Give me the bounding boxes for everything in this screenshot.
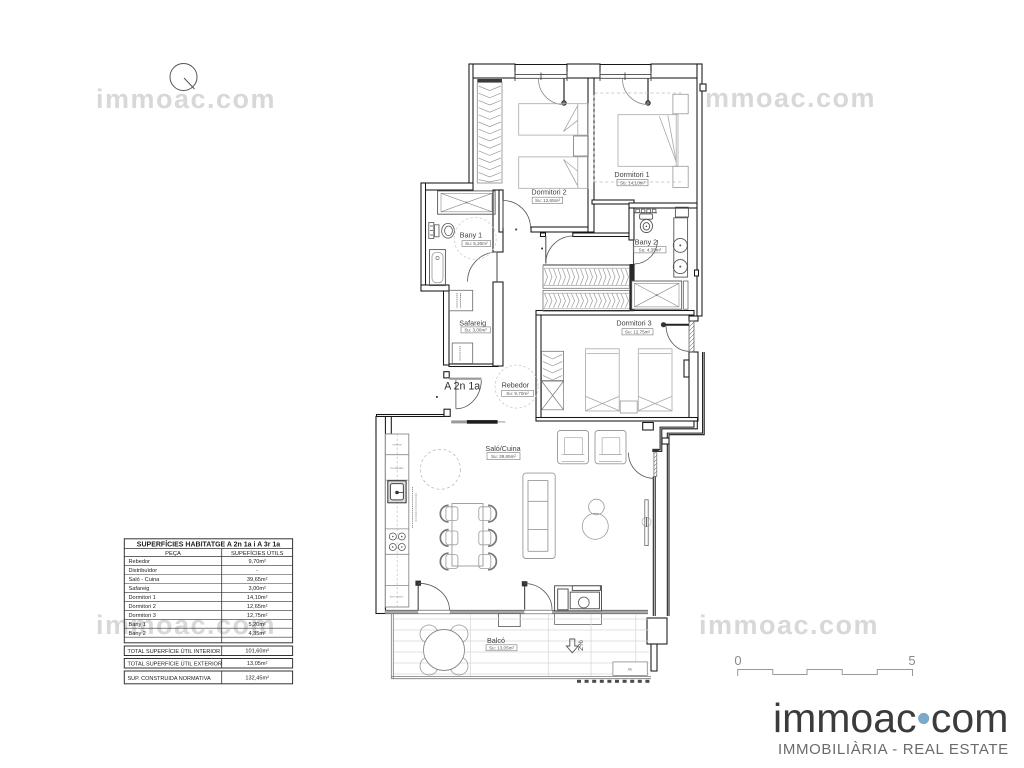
svg-text:-: - — [256, 568, 258, 574]
svg-text:rentaplats: rentaplats — [390, 466, 404, 470]
svg-text:Distribuïdor: Distribuïdor — [129, 568, 158, 574]
svg-text:Bany 2: Bany 2 — [129, 631, 146, 637]
svg-text:SUPERFÍCIES HABITATGE A 2n 1a: SUPERFÍCIES HABITATGE A 2n 1a i A 3r 1a — [137, 540, 281, 549]
svg-text:Safareig: Safareig — [129, 586, 150, 592]
svg-text:Bany 1: Bany 1 — [129, 622, 146, 628]
svg-text:AE: AE — [628, 668, 633, 672]
svg-text:Su: 13,05m²: Su: 13,05m² — [489, 646, 514, 651]
svg-text:Dormitori 1: Dormitori 1 — [129, 595, 156, 601]
svg-text:Dormitori 2: Dormitori 2 — [531, 188, 566, 197]
svg-text:Bany 1: Bany 1 — [460, 230, 482, 239]
svg-text:Saló - Cuina: Saló - Cuina — [129, 577, 161, 583]
svg-text:0: 0 — [734, 653, 741, 668]
svg-text:TOTAL SUPERFÍCIE ÚTIL INTERIOR: TOTAL SUPERFÍCIE ÚTIL INTERIOR — [128, 648, 221, 655]
svg-text:Su: 9,70m²: Su: 9,70m² — [506, 391, 529, 396]
svg-text:Balcó: Balcó — [487, 636, 505, 645]
svg-text:A 2n 1a: A 2n 1a — [444, 381, 480, 393]
svg-text:4,35m²: 4,35m² — [248, 631, 266, 637]
svg-text:Dormitori 3: Dormitori 3 — [129, 613, 156, 619]
svg-text:Dormitori 2: Dormitori 2 — [129, 604, 156, 610]
svg-text:5: 5 — [908, 653, 915, 668]
svg-text:39,65m²: 39,65m² — [247, 577, 268, 583]
svg-text:Dormitori 3: Dormitori 3 — [616, 319, 651, 328]
svg-text:12,75m²: 12,75m² — [247, 613, 268, 619]
svg-text:Rebedor: Rebedor — [129, 559, 151, 565]
svg-text:5,20m²: 5,20m² — [248, 622, 266, 628]
svg-text:132,45m²: 132,45m² — [245, 675, 269, 681]
svg-text:14,10m²: 14,10m² — [247, 595, 268, 601]
svg-text:Su: 5,20m²: Su: 5,20m² — [465, 241, 488, 246]
svg-text:3,00m²: 3,00m² — [248, 586, 266, 592]
svg-text:Saló/Cuina: Saló/Cuina — [485, 444, 520, 453]
svg-text:Su: 39,65m²: Su: 39,65m² — [491, 454, 516, 459]
svg-text:forn-micro: forn-micro — [390, 595, 404, 599]
svg-text:101,60m²: 101,60m² — [245, 649, 269, 655]
svg-text:Su: 12,65m²: Su: 12,65m² — [535, 198, 560, 203]
svg-text:Dormitori 1: Dormitori 1 — [614, 170, 649, 179]
svg-text:Bany 2: Bany 2 — [635, 238, 657, 247]
svg-text:13,05m²: 13,05m² — [247, 661, 268, 667]
svg-text:Su: 12,75m²: Su: 12,75m² — [625, 330, 650, 335]
svg-text:PEÇA: PEÇA — [165, 551, 181, 557]
svg-text:nevera: nevera — [392, 443, 402, 447]
svg-text:Su: 14,10m²: Su: 14,10m² — [620, 180, 645, 185]
svg-text:TOTAL SUPERFÍCIE ÚTIL EXTERIOR: TOTAL SUPERFÍCIE ÚTIL EXTERIOR — [128, 661, 222, 668]
svg-text:2%: 2% — [576, 640, 585, 651]
svg-text:9,70m²: 9,70m² — [248, 559, 266, 565]
svg-text:Su: 3,00m²: Su: 3,00m² — [464, 328, 487, 333]
svg-text:Su: 4,35m²: Su: 4,35m² — [639, 247, 662, 252]
svg-text:SUPEFÍCIES ÚTILS: SUPEFÍCIES ÚTILS — [231, 550, 284, 557]
svg-text:12,65m²: 12,65m² — [247, 604, 268, 610]
svg-text:Rebedor: Rebedor — [502, 381, 530, 390]
svg-text:SUP. CONSTRUIDA NORMATIVA: SUP. CONSTRUIDA NORMATIVA — [128, 676, 211, 682]
svg-text:Safareig: Safareig — [459, 318, 486, 327]
